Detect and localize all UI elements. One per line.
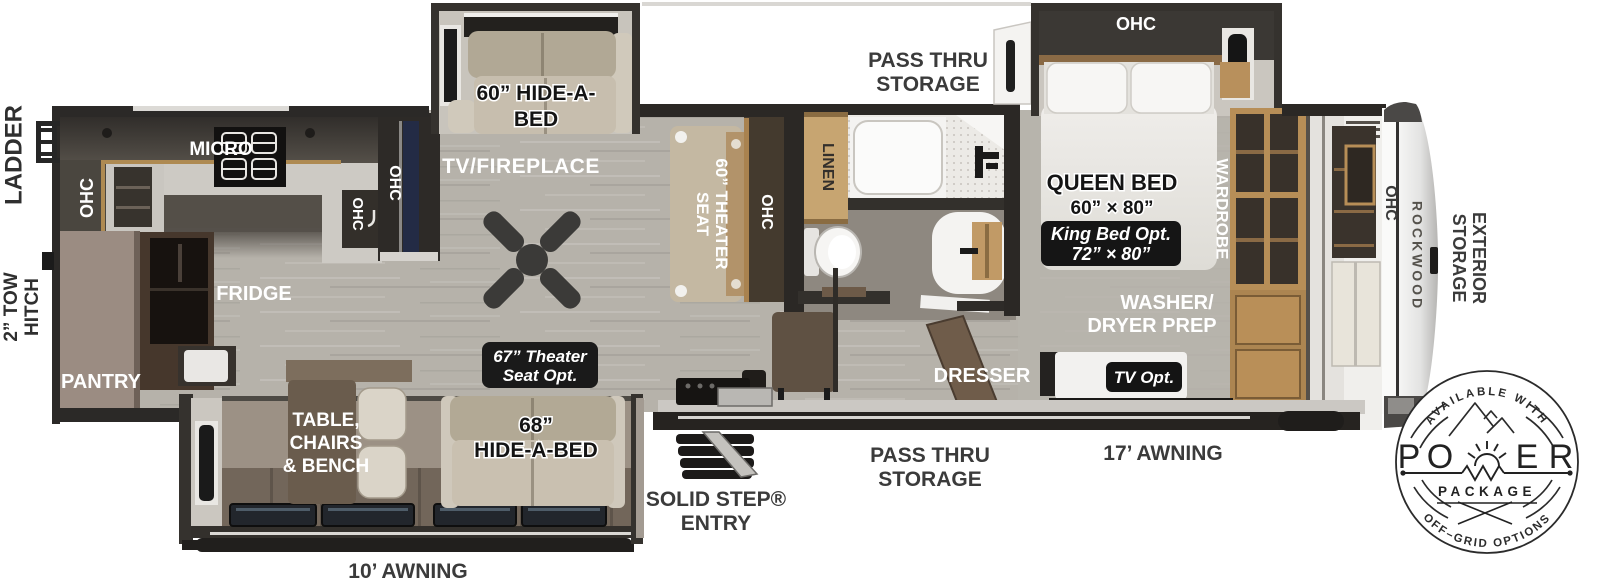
svg-text:PACKAGE: PACKAGE	[1438, 484, 1536, 499]
svg-text:PANTRY: PANTRY	[61, 371, 142, 393]
svg-text:67” Theater: 67” Theater	[493, 347, 588, 366]
svg-text:STORAGE: STORAGE	[878, 468, 981, 491]
svg-text:CHAIRS: CHAIRS	[290, 433, 363, 454]
svg-text:WASHER/: WASHER/	[1120, 292, 1214, 314]
svg-text:DRYER PREP: DRYER PREP	[1087, 315, 1216, 337]
svg-text:SOLID STEP®: SOLID STEP®	[646, 488, 787, 511]
svg-text:BED: BED	[514, 108, 558, 131]
svg-text:PASS THRU: PASS THRU	[868, 49, 988, 72]
svg-text:60” × 80”: 60” × 80”	[1071, 198, 1154, 219]
svg-text:DRESSER: DRESSER	[934, 365, 1031, 387]
svg-text:& BENCH: & BENCH	[283, 456, 370, 477]
svg-text:FRIDGE: FRIDGE	[216, 283, 292, 305]
svg-text:Seat Opt.: Seat Opt.	[503, 366, 578, 385]
svg-text:LADDER: LADDER	[0, 105, 27, 205]
svg-text:17’ AWNING: 17’ AWNING	[1103, 442, 1222, 465]
svg-text:E: E	[1516, 438, 1539, 476]
svg-text:PASS THRU: PASS THRU	[870, 444, 990, 467]
svg-text:King Bed Opt.: King Bed Opt.	[1051, 224, 1171, 244]
svg-text:ENTRY: ENTRY	[681, 512, 751, 535]
svg-text:HIDE-A-BED: HIDE-A-BED	[474, 439, 598, 462]
svg-text:OHC: OHC	[349, 197, 366, 231]
svg-text:ROCKWOOD: ROCKWOOD	[1409, 201, 1425, 311]
svg-text:P: P	[1398, 438, 1421, 476]
svg-text:O: O	[1427, 438, 1453, 476]
svg-text:R: R	[1549, 438, 1574, 476]
svg-text:60” HIDE-A-: 60” HIDE-A-	[476, 82, 595, 105]
svg-text:LINEN: LINEN	[819, 143, 836, 191]
svg-text:72” × 80”: 72” × 80”	[1072, 244, 1151, 264]
svg-text:TV Opt.: TV Opt.	[1114, 368, 1174, 387]
svg-text:MICRO: MICRO	[189, 139, 252, 160]
svg-text:TABLE,: TABLE,	[292, 410, 359, 431]
svg-text:2” TOWHITCH: 2” TOWHITCH	[1, 272, 43, 341]
svg-text:OHC: OHC	[1382, 185, 1399, 221]
svg-text:OHC: OHC	[386, 165, 403, 201]
svg-text:10’ AWNING: 10’ AWNING	[348, 560, 467, 580]
svg-text:68”: 68”	[519, 414, 553, 437]
svg-text:EXTERIORSTORAGE: EXTERIORSTORAGE	[1449, 212, 1489, 304]
svg-text:WARDROBE: WARDROBE	[1213, 158, 1232, 259]
svg-text:STORAGE: STORAGE	[876, 73, 979, 96]
svg-text:TV/FIREPLACE: TV/FIREPLACE	[442, 155, 600, 178]
svg-text:OHC: OHC	[1116, 14, 1156, 34]
svg-text:QUEEN BED: QUEEN BED	[1047, 170, 1178, 195]
svg-text:OHC: OHC	[758, 194, 775, 230]
svg-text:OHC: OHC	[77, 178, 97, 218]
